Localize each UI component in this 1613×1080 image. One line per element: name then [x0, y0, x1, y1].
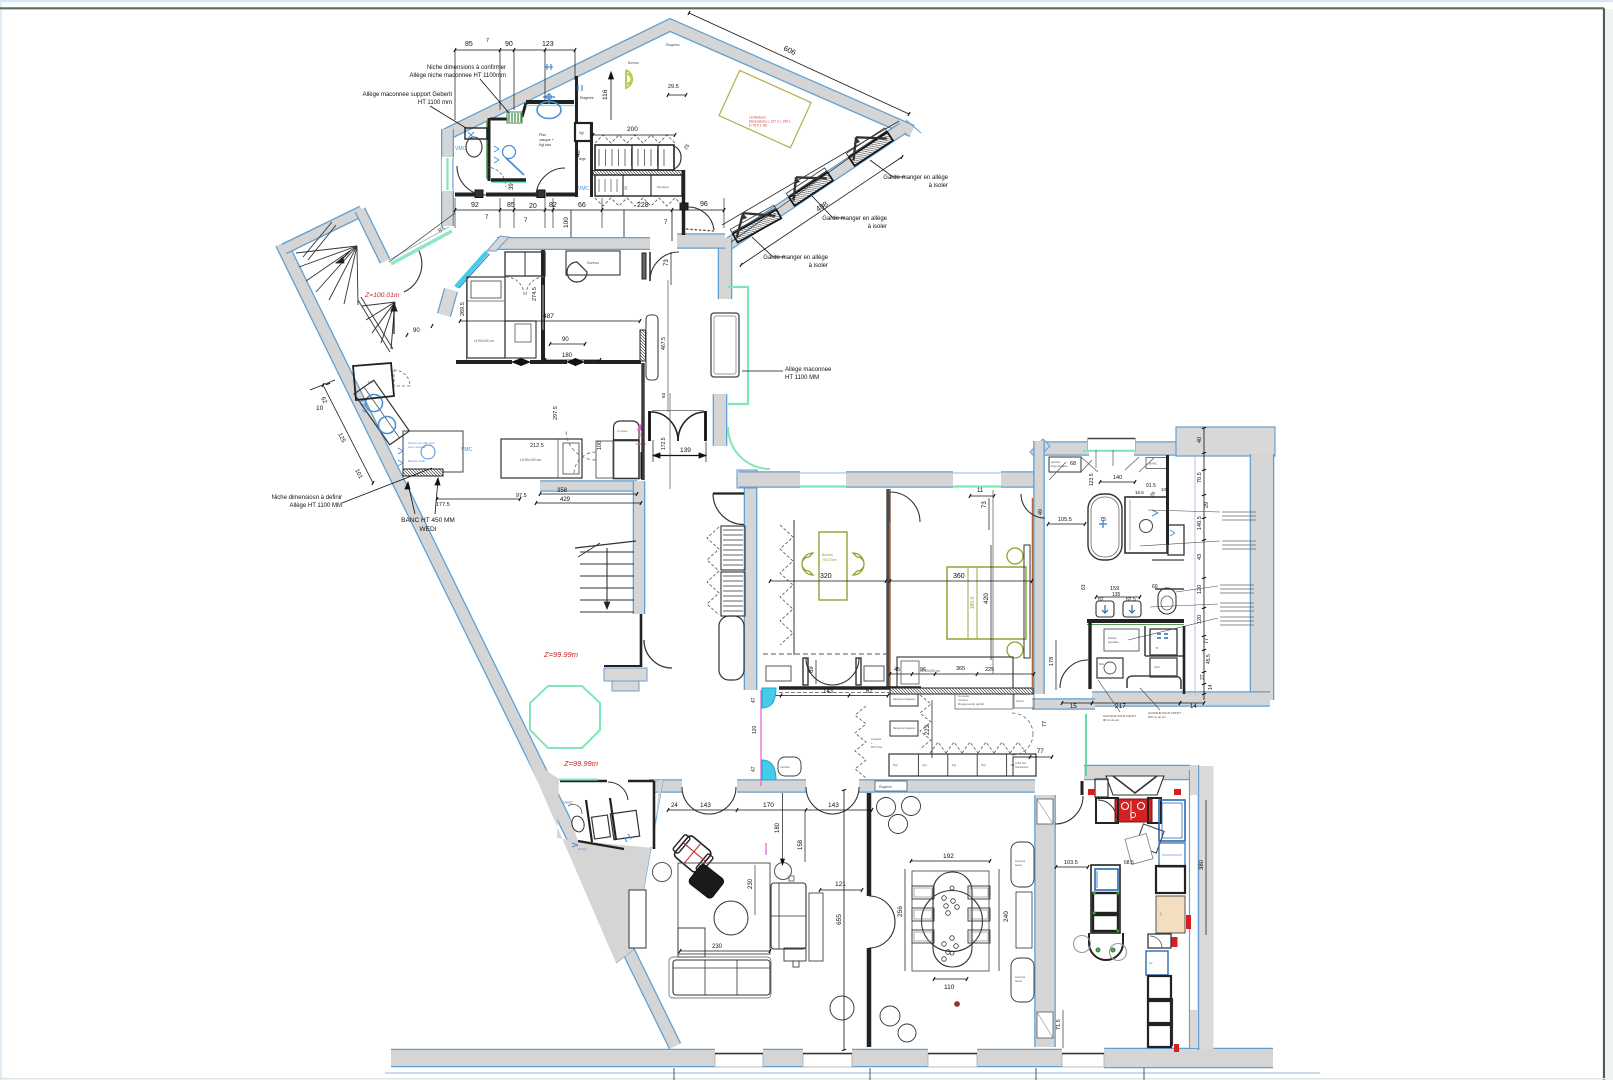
svg-text:67: 67 [866, 689, 873, 695]
svg-text:VMC: VMC [455, 146, 467, 152]
svg-text:24: 24 [671, 803, 678, 809]
svg-text:66: 66 [578, 202, 586, 209]
svg-text:63: 63 [1081, 584, 1087, 590]
svg-text:177.5: 177.5 [436, 502, 450, 508]
svg-text:297.5: 297.5 [553, 406, 559, 420]
svg-text:223: 223 [925, 724, 931, 735]
svg-text:70x170cm: 70x170cm [822, 558, 837, 562]
svg-text:VMC: VMC [461, 447, 473, 453]
svg-text:178: 178 [1049, 657, 1055, 666]
svg-text:467.5: 467.5 [661, 337, 667, 350]
svg-text:haute: haute [1015, 979, 1022, 983]
svg-text:49: 49 [1038, 509, 1044, 515]
svg-text:120: 120 [752, 725, 758, 734]
svg-text:39: 39 [509, 183, 515, 190]
svg-text:85: 85 [507, 202, 515, 209]
svg-text:Z=100.01m: Z=100.01m [364, 292, 400, 299]
svg-text:68.5: 68.5 [1124, 860, 1134, 866]
svg-text:143: 143 [823, 689, 834, 695]
svg-text:à isoler: à isoler [809, 263, 828, 269]
svg-text:15.5: 15.5 [1135, 490, 1144, 495]
svg-text:BANC HT 450 MM: BANC HT 450 MM [401, 517, 455, 524]
svg-text:H 79.5 1 bis: H 79.5 1 bis [749, 124, 767, 128]
svg-text:63: 63 [661, 392, 666, 398]
svg-text:92: 92 [471, 202, 479, 209]
svg-text:123: 123 [542, 41, 554, 48]
svg-text:Garde manger en allège: Garde manger en allège [763, 255, 828, 261]
svg-text:97.5: 97.5 [516, 493, 527, 499]
svg-text:Niche dimensiosn à definir: Niche dimensiosn à definir [272, 495, 342, 501]
svg-text:VMC: VMC [563, 800, 574, 805]
svg-text:Rgt: Rgt [893, 763, 898, 767]
svg-text:Z=99.99m: Z=99.99m [563, 759, 598, 768]
svg-text:256: 256 [897, 906, 904, 917]
svg-text:60: 60 [1152, 584, 1158, 590]
svg-text:192: 192 [943, 853, 954, 860]
svg-text:BANC: BANC [1149, 462, 1158, 466]
svg-text:140.5: 140.5 [1197, 516, 1203, 530]
svg-text:158: 158 [798, 839, 804, 850]
svg-text:Lit 90x190 cm: Lit 90x190 cm [474, 339, 494, 343]
svg-text:100: 100 [597, 441, 603, 450]
svg-text:358: 358 [557, 488, 568, 494]
svg-text:70.5: 70.5 [1197, 472, 1203, 483]
svg-text:Rgt: Rgt [952, 763, 957, 767]
svg-text:180: 180 [775, 822, 781, 833]
svg-text:135: 135 [1112, 592, 1121, 598]
svg-text:Lit 90x190 cm: Lit 90x190 cm [520, 458, 541, 462]
svg-text:Étagères: Étagères [580, 95, 594, 100]
svg-text:40: 40 [637, 432, 642, 437]
svg-text:77: 77 [1037, 749, 1044, 755]
svg-text:655: 655 [836, 914, 843, 925]
svg-text:Bureau: Bureau [587, 261, 599, 265]
svg-text:à isoler: à isoler [868, 224, 887, 230]
svg-text:85: 85 [465, 41, 473, 48]
svg-text:180.0: 180.0 [970, 597, 976, 610]
svg-text:29: 29 [1204, 502, 1210, 508]
svg-text:Plan: Plan [539, 133, 546, 137]
svg-text:82.5: 82.5 [1126, 597, 1136, 603]
svg-text:123.5: 123.5 [1089, 473, 1095, 486]
svg-text:120: 120 [1197, 585, 1203, 594]
svg-text:Z=99.99m: Z=99.99m [543, 650, 578, 659]
svg-text:Lit 90x190 cm: Lit 90x190 cm [920, 669, 940, 673]
svg-text:170: 170 [763, 802, 774, 809]
svg-text:206 cm de sol: 206 cm de sol [1148, 715, 1166, 719]
svg-text:Kgl: Kgl [579, 131, 584, 135]
svg-text:AC2: AC2 [1154, 665, 1160, 669]
svg-text:47: 47 [751, 766, 757, 772]
svg-text:Rangements périph: Rangements périph [958, 702, 985, 706]
svg-text:96: 96 [700, 201, 708, 208]
svg-text:110: 110 [944, 984, 955, 991]
svg-text:200: 200 [627, 126, 638, 133]
svg-text:143: 143 [828, 802, 839, 809]
svg-text:Bureau: Bureau [822, 553, 833, 557]
svg-text:20: 20 [624, 186, 628, 190]
svg-text:139: 139 [680, 447, 691, 454]
svg-text:à isoler: à isoler [929, 183, 948, 189]
svg-text:7: 7 [486, 38, 489, 44]
svg-text:487: 487 [543, 313, 554, 320]
svg-text:Rgt: Rgt [922, 763, 927, 767]
svg-text:43: 43 [1197, 554, 1203, 560]
svg-text:14: 14 [1208, 684, 1214, 690]
svg-text:rgt: rgt [1159, 912, 1163, 916]
svg-text:90: 90 [562, 337, 569, 343]
svg-text:MAL: MAL [1099, 662, 1105, 666]
svg-text:212.5: 212.5 [530, 443, 544, 449]
svg-text:Garde manger en allège: Garde manger en allège [883, 175, 948, 181]
svg-text:HT 1100 mm: HT 1100 mm [418, 100, 452, 106]
svg-text:77: 77 [1204, 638, 1210, 644]
svg-text:180: 180 [562, 353, 573, 359]
svg-text:20: 20 [529, 203, 537, 210]
svg-text:27: 27 [1200, 674, 1206, 680]
svg-text:230: 230 [712, 944, 723, 950]
svg-text:B: B [1156, 646, 1158, 650]
svg-text:105.5: 105.5 [1058, 517, 1072, 523]
svg-text:380: 380 [1199, 859, 1205, 870]
svg-text:WEDI: WEDI [420, 526, 437, 533]
svg-text:LV: LV [1149, 961, 1152, 965]
svg-text:121: 121 [835, 881, 846, 888]
svg-text:Étagères: Étagères [879, 784, 892, 789]
svg-text:Bouche souffl.: Bouche souffl. [408, 459, 426, 463]
svg-text:Bureau: Bureau [628, 61, 639, 65]
svg-text:365: 365 [956, 666, 965, 672]
svg-text:90: 90 [413, 328, 420, 334]
svg-text:103.5: 103.5 [1064, 860, 1078, 866]
svg-text:15: 15 [1070, 704, 1077, 710]
svg-text:228: 228 [637, 202, 649, 209]
svg-text:chaussures: chaussures [1015, 765, 1029, 769]
svg-text:274.5: 274.5 [532, 287, 538, 301]
svg-text:320: 320 [820, 573, 832, 580]
svg-text:75: 75 [1100, 517, 1106, 523]
svg-text:Rgt: Rgt [981, 763, 986, 767]
svg-text:77: 77 [1042, 721, 1048, 727]
svg-text:45.5: 45.5 [1206, 654, 1212, 664]
svg-text:240: 240 [1003, 911, 1010, 922]
svg-text:90: 90 [505, 41, 513, 48]
svg-text:269.5: 269.5 [460, 302, 466, 316]
svg-text:Allège niche maconnee HT 1100m: Allège niche maconnee HT 1100mm [410, 73, 507, 79]
svg-text:73: 73 [982, 501, 988, 508]
svg-text:Kgl bas: Kgl bas [539, 143, 551, 147]
svg-text:Penderie: Penderie [657, 185, 669, 189]
svg-text:vasque +: vasque + [539, 138, 554, 142]
svg-text:Allège maconnee support Geberi: Allège maconnee support Geberit [363, 92, 453, 98]
svg-text:pendant: pendant [1108, 640, 1119, 644]
svg-text:140: 140 [1113, 475, 1122, 481]
svg-text:73: 73 [664, 259, 670, 266]
svg-text:230: 230 [748, 878, 754, 889]
svg-text:11: 11 [977, 488, 984, 494]
svg-text:40: 40 [1197, 437, 1203, 443]
svg-text:98 cm de sol: 98 cm de sol [1103, 718, 1119, 722]
svg-text:HT 1100 MM: HT 1100 MM [785, 375, 819, 381]
svg-text:360: 360 [953, 573, 965, 580]
svg-text:Rangement étagères: Rangement étagères [893, 727, 916, 730]
svg-text:Allège HT 1100 MM: Allège HT 1100 MM [290, 503, 342, 509]
svg-text:100: 100 [563, 217, 570, 228]
svg-text:Pendant: Pendant [578, 848, 587, 851]
svg-text:Étagères: Étagères [666, 42, 680, 47]
svg-text:116: 116 [602, 89, 609, 100]
svg-text:Niche dimensions à confirmer: Niche dimensions à confirmer [427, 65, 506, 71]
svg-text:VMC: VMC [578, 186, 590, 192]
svg-text:coffre fort: coffre fort [1015, 761, 1026, 765]
svg-text:frigo: frigo [368, 380, 374, 384]
svg-text:71.5: 71.5 [1056, 1019, 1062, 1030]
svg-text:429: 429 [560, 497, 571, 503]
svg-text:143: 143 [700, 802, 711, 809]
svg-text:40: 40 [576, 150, 582, 157]
svg-text:29.5: 29.5 [668, 84, 679, 90]
svg-text:420: 420 [983, 593, 990, 604]
svg-text:chevet: chevet [1016, 699, 1024, 703]
svg-text:haute: haute [1015, 863, 1022, 867]
svg-text:10: 10 [316, 405, 324, 412]
svg-text:217: 217 [1115, 703, 1126, 710]
svg-text:Rangement étagères: Rangement étagères [893, 698, 916, 701]
svg-text:linge-fontaine: linge-fontaine [1051, 464, 1068, 468]
svg-text:Allège maconnee: Allège maconnee [785, 367, 832, 373]
svg-text:RGT bas: RGT bas [871, 745, 883, 749]
svg-text:82: 82 [549, 202, 557, 209]
svg-text:82: 82 [1098, 597, 1104, 603]
svg-text:91.5: 91.5 [1146, 483, 1156, 489]
svg-text:47: 47 [751, 697, 757, 703]
svg-text:89: 89 [809, 666, 815, 673]
svg-text:Console: Console [780, 765, 790, 769]
svg-text:172.5: 172.5 [661, 437, 667, 450]
svg-text:Frigidaire: Frigidaire [617, 429, 628, 433]
svg-text:68: 68 [1070, 461, 1076, 467]
svg-text:14: 14 [1190, 704, 1197, 710]
svg-text:avec caniveau: avec caniveau [408, 445, 426, 449]
svg-text:100: 100 [1161, 487, 1169, 492]
